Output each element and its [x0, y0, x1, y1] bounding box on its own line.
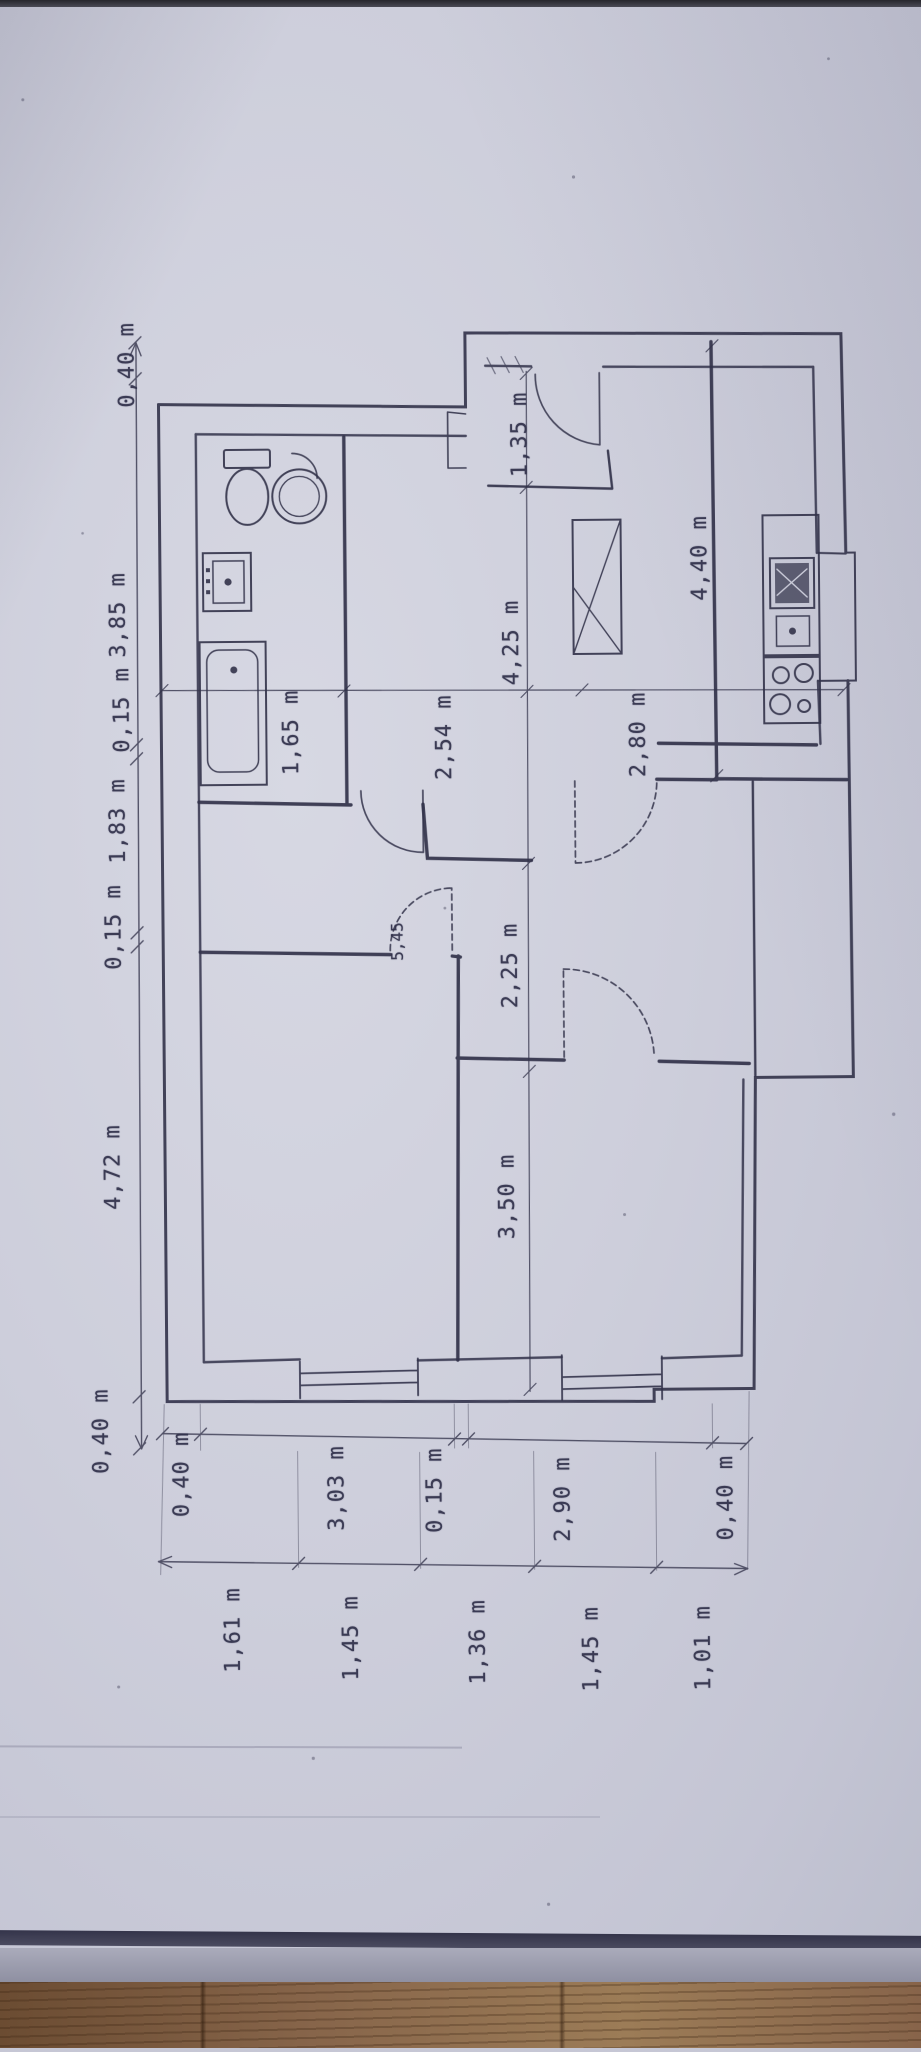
dimension-label: 0,15 m — [101, 884, 127, 970]
photo-of-floor-plan: { "photo": { "paper_color": "#cdcedb", "… — [0, 0, 921, 2048]
floor-plan: 0,40 m 3,85 m 0,15 m 1,83 m 0,15 m 4,72 … — [0, 0, 921, 2052]
dimension-label: 0,40 m — [713, 1455, 739, 1541]
sink — [272, 469, 326, 523]
windows — [300, 1354, 662, 1402]
dimension-label: 0,40 m — [114, 322, 140, 408]
dimension-label: 1,36 m — [465, 1599, 491, 1685]
dimension-label: 0,15 m — [422, 1447, 448, 1533]
dimension-label: 5,45 — [388, 922, 407, 961]
hall-closet — [572, 520, 621, 654]
dimension-label: 3,85 m — [105, 572, 131, 658]
wood-floor — [0, 1982, 921, 2048]
dimension-label: 4,72 m — [100, 1124, 126, 1210]
dimension-label: 1,01 m — [690, 1605, 716, 1691]
dimension-label: 0,15 m — [109, 667, 135, 753]
dimension-label: 2,90 m — [550, 1456, 576, 1542]
washing-machine — [203, 553, 252, 611]
outer-walls — [158, 330, 862, 1406]
dimension-label: 2,80 m — [626, 692, 652, 778]
toilet — [224, 450, 271, 525]
paper-crease — [0, 1816, 600, 1818]
dimension-label: 2,25 m — [498, 923, 524, 1009]
dimension-label: 1,61 m — [220, 1587, 246, 1673]
dimension-label: 1,65 m — [278, 690, 304, 776]
kitchen-units — [762, 515, 820, 723]
interior-walls — [195, 341, 852, 1363]
paper-bottom-edge — [0, 1948, 921, 1984]
dimension-label: 4,40 m — [687, 515, 713, 601]
dimension-label: 1,45 m — [338, 1595, 364, 1681]
dimension-label: 4,25 m — [499, 600, 525, 686]
bathroom-fixtures — [198, 449, 329, 785]
dimension-label: 1,35 m — [507, 392, 533, 478]
dimension-label: 3,03 m — [324, 1445, 350, 1531]
floor-plan-drawing — [0, 0, 921, 2052]
dimension-label: 2,54 m — [432, 694, 458, 780]
dimension-label: 0,40 m — [89, 1388, 115, 1474]
dimension-label: 1,83 m — [105, 778, 131, 864]
dimension-label: 3,50 m — [495, 1154, 521, 1240]
dimension-label: 1,45 m — [578, 1606, 604, 1692]
bathtub — [200, 642, 267, 786]
dimension-label: 0,40 m — [169, 1432, 195, 1518]
